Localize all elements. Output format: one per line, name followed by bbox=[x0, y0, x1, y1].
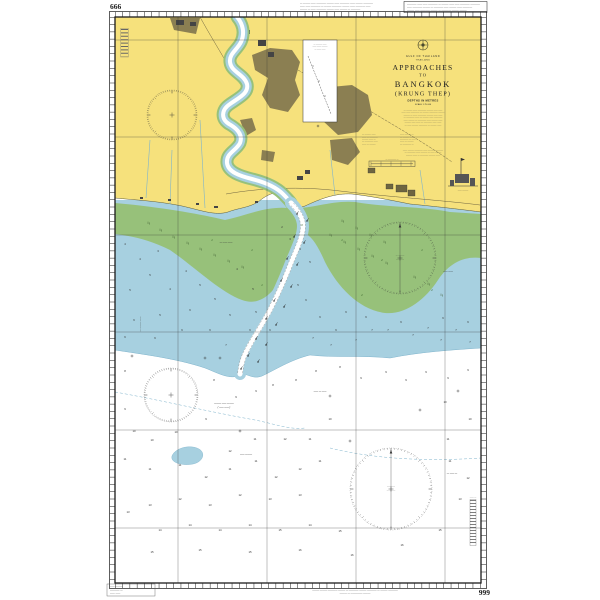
svg-text:10: 10 bbox=[468, 417, 472, 421]
svg-text:15: 15 bbox=[278, 528, 282, 532]
svg-text:12: 12 bbox=[228, 449, 232, 453]
rose2-label1: — ——— bbox=[396, 255, 405, 257]
svg-text:11: 11 bbox=[447, 437, 450, 441]
scale-ladder-caption: —— — bbox=[470, 497, 477, 499]
svg-text:10: 10 bbox=[132, 429, 136, 433]
svg-text:10: 10 bbox=[174, 430, 178, 434]
svg-text:10: 10 bbox=[328, 417, 332, 421]
title-notes-paragraph2: —— ——— ———— —— ——— ————— ———— —— ——— — —… bbox=[403, 150, 444, 157]
vertical-sea-label: — ——— —— bbox=[140, 316, 142, 333]
svg-text:——— —— ———: ——— —— ——— bbox=[213, 403, 234, 405]
inset-panel: — ——— ———— —— ———— —— —— bbox=[303, 40, 337, 127]
svg-text:—— ———: —— ——— bbox=[239, 454, 253, 456]
svg-text:11: 11 bbox=[319, 459, 322, 463]
svg-text:13: 13 bbox=[208, 503, 212, 507]
svg-text:10: 10 bbox=[443, 400, 447, 404]
svg-text:13: 13 bbox=[268, 497, 272, 501]
title-line4: (KRUNG THEP) bbox=[395, 91, 451, 98]
bottom-left-caption: — ——— ———— —— ———— ——— —— ———— bbox=[160, 587, 220, 590]
svg-text:15: 15 bbox=[338, 529, 342, 533]
svg-text:13: 13 bbox=[126, 510, 130, 514]
svg-text:13: 13 bbox=[148, 503, 152, 507]
title-depths: DEPTHS IN METRES bbox=[407, 99, 438, 103]
svg-text:14: 14 bbox=[248, 523, 252, 527]
svg-text:12: 12 bbox=[298, 467, 302, 471]
svg-text:15: 15 bbox=[438, 528, 442, 532]
svg-text:11: 11 bbox=[149, 467, 152, 471]
chart-number-top: 666 bbox=[110, 2, 122, 11]
title-line3: BANGKOK bbox=[395, 79, 452, 89]
svg-text:14: 14 bbox=[308, 523, 312, 527]
svg-text:16: 16 bbox=[350, 553, 354, 557]
svg-text:14: 14 bbox=[218, 528, 222, 532]
top-margin-note: — ——— —— ———— ——— —— ———— —— ——— —————— … bbox=[300, 2, 374, 11]
svg-text:15: 15 bbox=[248, 550, 252, 554]
bottom-center-imprint2: ——— — ————— ——— bbox=[340, 593, 371, 596]
svg-text:11: 11 bbox=[255, 459, 258, 463]
svg-text:— ―― ——: — ―― —— bbox=[219, 242, 233, 244]
svg-text:12: 12 bbox=[283, 437, 287, 441]
title-sea: GULF OF THAILAND bbox=[406, 54, 440, 58]
svg-text:13: 13 bbox=[458, 497, 462, 501]
title-country: THAILAND bbox=[416, 59, 431, 62]
crest-icon bbox=[418, 40, 428, 50]
inset-title: — ——— ———— —— ———— —— —— bbox=[312, 44, 327, 51]
svg-text:12: 12 bbox=[204, 475, 208, 479]
top-margin-box-text: ———— —— —— ———— — ——— —— —— ———— —————— … bbox=[407, 3, 481, 12]
svg-text:16: 16 bbox=[400, 543, 404, 547]
map-body: — ——— ———— —— ———— —— —— —— ——— GULF OF … bbox=[115, 17, 481, 583]
chart-number-bottom: 999 bbox=[479, 588, 491, 597]
title-line2: TO bbox=[419, 73, 427, 78]
svg-text:14: 14 bbox=[188, 523, 192, 527]
svg-text:( —— —— ): ( —— —— ) bbox=[218, 407, 231, 409]
bottom-left-imprint: —— ——————— ——— —— — ——— ———— —— ———— ———… bbox=[107, 584, 220, 596]
svg-text:11: 11 bbox=[124, 457, 127, 461]
svg-text:—— ——: —— —— bbox=[442, 271, 454, 273]
svg-text:11: 11 bbox=[309, 437, 312, 441]
svg-text:10: 10 bbox=[150, 438, 154, 442]
svg-text:— —— —: — —— — bbox=[446, 473, 458, 475]
svg-text:12: 12 bbox=[238, 493, 242, 497]
svg-text:12: 12 bbox=[274, 475, 278, 479]
bottom-left-block: —— ——————— ——— —— bbox=[110, 586, 123, 596]
rose4-label1: ———— bbox=[387, 486, 395, 488]
svg-text:— ———— —: — ———— — bbox=[385, 159, 398, 161]
svg-text:12: 12 bbox=[178, 497, 182, 501]
svg-text:11: 11 bbox=[254, 437, 257, 441]
supply-base-label: —— ——— bbox=[458, 190, 469, 192]
top-margin-box: ———— —— —— ———— — ——— —— —— ———— —————— … bbox=[404, 2, 487, 13]
svg-text:13: 13 bbox=[298, 493, 302, 497]
svg-text:15: 15 bbox=[198, 548, 202, 552]
rose2-label2: ———— bbox=[396, 259, 404, 261]
svg-text:14: 14 bbox=[158, 528, 162, 532]
svg-text:11: 11 bbox=[449, 459, 452, 463]
svg-text:16: 16 bbox=[298, 548, 302, 552]
svg-text:—— — ——: —— — —— bbox=[313, 391, 327, 393]
svg-text:15: 15 bbox=[150, 550, 154, 554]
title-notes-paragraph: — ——— —— ———— ——— —— ———— —— ———— — ——— … bbox=[402, 110, 446, 127]
title-scale: SCALE 1:75 000 bbox=[415, 103, 432, 106]
svg-text:12: 12 bbox=[466, 476, 470, 480]
nautical-chart: — ——— ———— —— ———— —— —— —— ——— GULF OF … bbox=[0, 0, 600, 600]
svg-text:11: 11 bbox=[179, 463, 182, 467]
rose4-label2: — ——— bbox=[387, 490, 396, 492]
title-line1: APPROACHES bbox=[393, 63, 454, 72]
svg-text:11: 11 bbox=[229, 467, 232, 471]
